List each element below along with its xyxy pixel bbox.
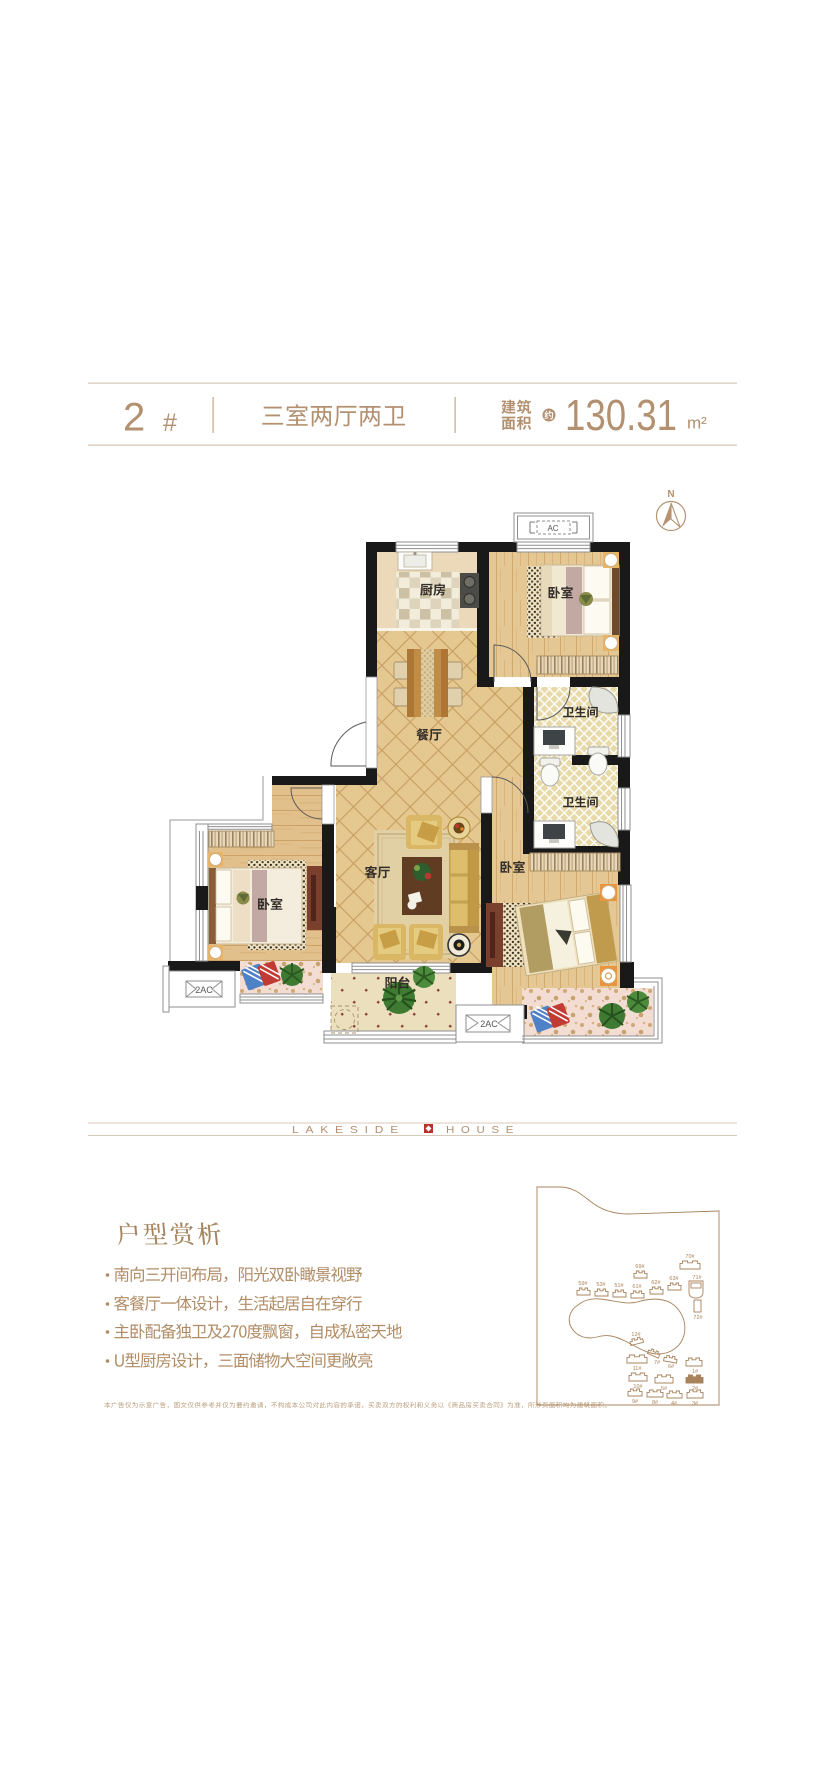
svg-text:HOUSE: HOUSE (446, 1124, 520, 1136)
svg-text:59#: 59# (578, 1281, 588, 1287)
svg-text:N: N (667, 489, 674, 500)
svg-text:130.31: 130.31 (565, 391, 677, 440)
svg-text:72#: 72# (693, 1315, 703, 1321)
svg-text:3#: 3# (692, 1401, 699, 1407)
svg-text:7#: 7# (654, 1360, 661, 1366)
svg-text:LAKESIDE: LAKESIDE (292, 1124, 405, 1136)
svg-text:2AC: 2AC (480, 1019, 498, 1029)
svg-text:62#: 62# (651, 1280, 661, 1286)
svg-text:53#: 53# (596, 1282, 606, 1288)
svg-text:11#: 11# (633, 1366, 643, 1372)
svg-text:m²: m² (687, 414, 707, 433)
svg-text:51#: 51# (614, 1283, 624, 1289)
svg-text:71#: 71# (692, 1275, 702, 1281)
svg-text:4#: 4# (671, 1401, 678, 1407)
svg-text:63#: 63# (669, 1276, 679, 1282)
svg-text:12#: 12# (631, 1332, 641, 1338)
svg-text:6#: 6# (668, 1364, 675, 1370)
svg-text:69#: 69# (635, 1264, 645, 1270)
svg-text:2AC: 2AC (195, 985, 213, 995)
svg-text:2: 2 (123, 396, 145, 440)
svg-text:AC: AC (547, 524, 558, 533)
svg-text:5#: 5# (661, 1386, 668, 1392)
svg-text:#: # (163, 409, 177, 437)
svg-text:8#: 8# (652, 1400, 659, 1406)
svg-text:70#: 70# (685, 1254, 695, 1260)
svg-text:9#: 9# (632, 1399, 639, 1405)
svg-text:1#: 1# (692, 1369, 699, 1375)
svg-text:61#: 61# (632, 1284, 642, 1290)
